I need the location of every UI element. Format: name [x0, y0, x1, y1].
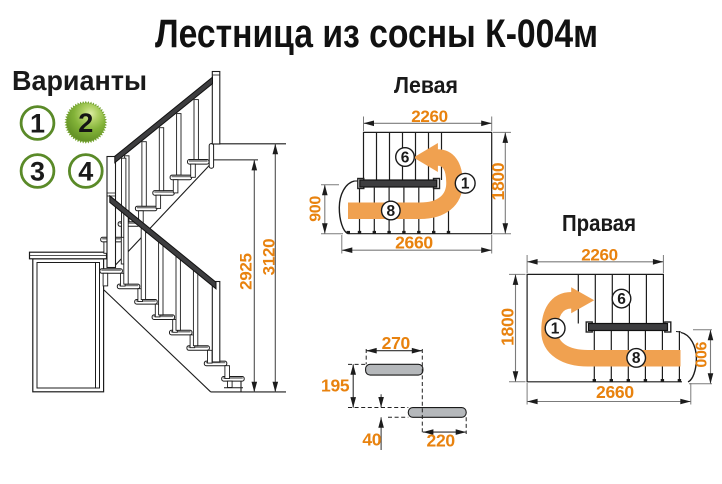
svg-text:6: 6	[401, 149, 410, 166]
svg-text:Левая: Левая	[394, 72, 458, 98]
svg-text:1: 1	[30, 108, 45, 138]
svg-text:3120: 3120	[260, 239, 279, 276]
svg-text:900: 900	[692, 342, 709, 368]
svg-text:Варианты: Варианты	[12, 65, 147, 96]
svg-text:1800: 1800	[488, 162, 508, 200]
svg-text:220: 220	[427, 431, 456, 451]
svg-text:900: 900	[307, 196, 324, 222]
svg-text:40: 40	[362, 430, 381, 450]
svg-text:Правая: Правая	[562, 210, 636, 236]
svg-text:2660: 2660	[395, 233, 433, 253]
svg-text:2925: 2925	[236, 253, 255, 290]
svg-text:8: 8	[632, 350, 641, 367]
svg-text:2660: 2660	[596, 382, 634, 402]
svg-text:8: 8	[386, 203, 395, 220]
svg-text:2260: 2260	[411, 107, 448, 126]
svg-text:4: 4	[78, 156, 93, 186]
svg-text:195: 195	[321, 376, 350, 396]
svg-text:2: 2	[78, 108, 93, 138]
svg-text:2260: 2260	[581, 245, 618, 264]
svg-text:6: 6	[617, 291, 626, 308]
svg-text:270: 270	[382, 333, 411, 353]
svg-text:1: 1	[461, 176, 470, 193]
svg-text:1: 1	[551, 321, 560, 338]
svg-text:Лестница из сосны К-004м: Лестница из сосны К-004м	[155, 12, 598, 56]
svg-text:1800: 1800	[498, 308, 518, 346]
svg-text:3: 3	[30, 156, 45, 186]
